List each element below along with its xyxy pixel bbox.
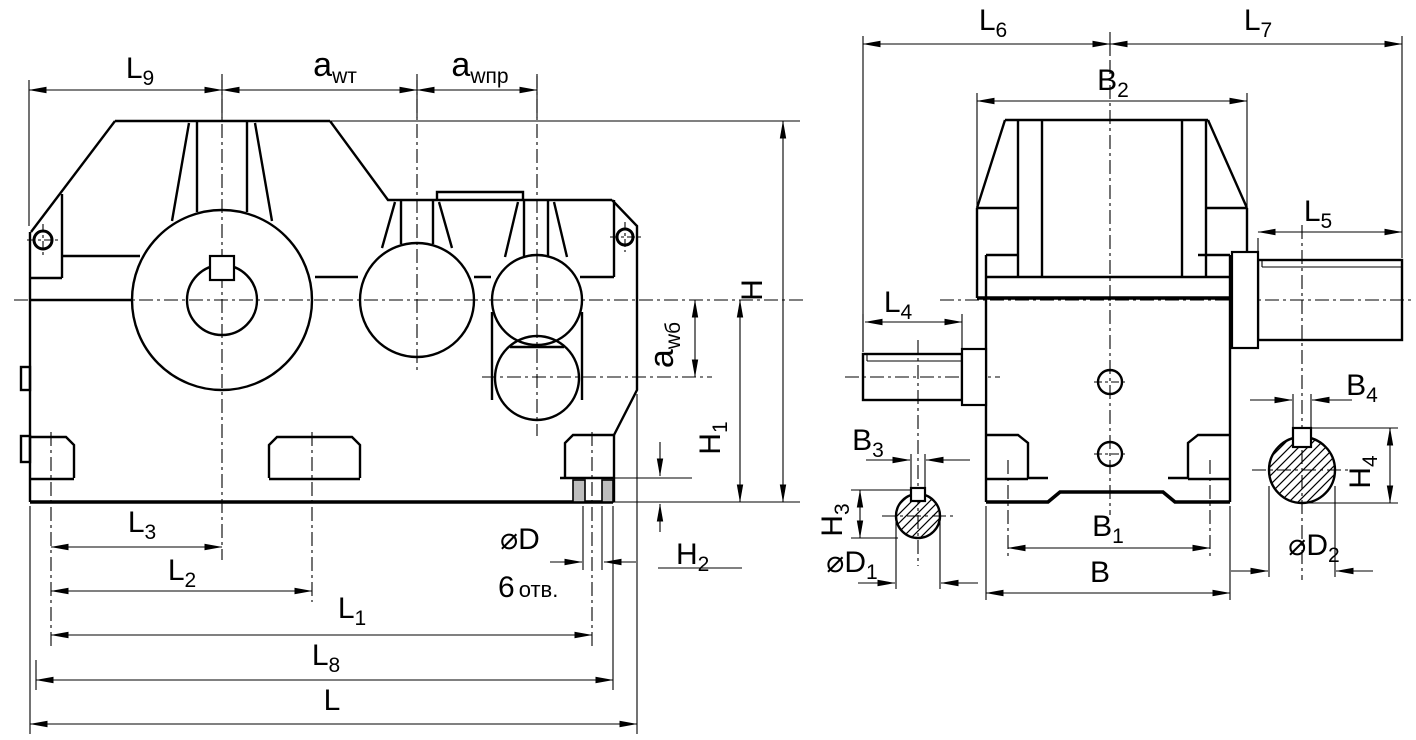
input-shaft-bearing-cap <box>962 349 986 405</box>
label-B: B <box>1090 556 1110 589</box>
output-shaft-keyway <box>210 256 234 280</box>
input-shaft-key <box>911 488 925 501</box>
drawing-background <box>0 0 1416 740</box>
label-L: L <box>324 684 341 717</box>
output-shaft-key <box>1293 428 1311 447</box>
label-H: H <box>736 279 769 301</box>
gearbox-drawing: L9 awт awпр H awб H1 H2 L3 L2 L1 L8 L ⌀D… <box>0 0 1416 740</box>
technical-drawing-page: L9 awт awпр H awб H1 H2 L3 L2 L1 L8 L ⌀D… <box>0 0 1416 740</box>
label-dD: ⌀D <box>500 523 540 556</box>
output-shaft-bearing-cap <box>1232 252 1258 348</box>
